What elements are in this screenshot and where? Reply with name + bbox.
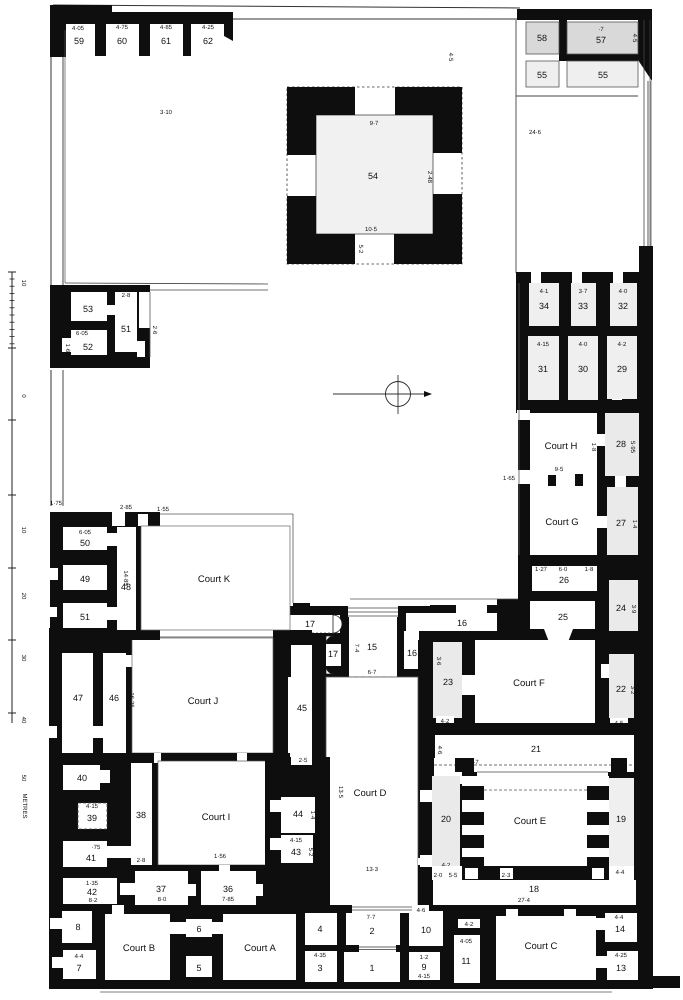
svg-text:5: 5 bbox=[196, 963, 201, 973]
svg-text:4·05: 4·05 bbox=[460, 938, 473, 945]
svg-text:1·65: 1·65 bbox=[503, 475, 516, 482]
svg-text:61: 61 bbox=[161, 36, 171, 46]
svg-text:15: 15 bbox=[367, 642, 377, 652]
svg-text:1·4: 1·4 bbox=[309, 811, 316, 820]
svg-text:1·8: 1·8 bbox=[585, 566, 594, 573]
svg-text:37: 37 bbox=[156, 884, 166, 894]
svg-text:8: 8 bbox=[75, 922, 80, 932]
svg-text:Court H: Court H bbox=[545, 441, 578, 452]
svg-text:29: 29 bbox=[617, 364, 627, 374]
svg-text:9·7: 9·7 bbox=[370, 120, 379, 127]
svg-text:4·35: 4·35 bbox=[314, 952, 327, 959]
svg-text:3·95: 3·95 bbox=[193, 949, 206, 956]
svg-text:4·25: 4·25 bbox=[615, 952, 628, 959]
svg-text:8·0: 8·0 bbox=[158, 896, 167, 903]
svg-text:10: 10 bbox=[20, 280, 27, 287]
svg-text:6: 6 bbox=[196, 924, 201, 934]
svg-text:13: 13 bbox=[616, 963, 626, 973]
svg-text:16: 16 bbox=[407, 648, 417, 658]
svg-text:33: 33 bbox=[578, 301, 588, 311]
svg-text:50: 50 bbox=[20, 775, 27, 782]
svg-text:4·25: 4·25 bbox=[202, 24, 215, 31]
svg-text:2·8: 2·8 bbox=[122, 292, 131, 299]
svg-text:1·55: 1·55 bbox=[157, 506, 170, 513]
svg-text:1·8: 1·8 bbox=[590, 443, 597, 452]
svg-text:Court C: Court C bbox=[525, 941, 558, 952]
svg-text:26: 26 bbox=[559, 575, 569, 585]
svg-text:43: 43 bbox=[291, 847, 301, 857]
svg-text:Court K: Court K bbox=[198, 574, 231, 585]
svg-text:5·2: 5·2 bbox=[307, 848, 314, 857]
svg-text:18: 18 bbox=[529, 884, 539, 894]
svg-text:4·0: 4·0 bbox=[619, 288, 628, 295]
svg-text:4·15: 4·15 bbox=[537, 341, 550, 348]
svg-text:Court B: Court B bbox=[123, 943, 155, 954]
svg-text:2·08: 2·08 bbox=[573, 872, 586, 879]
svg-text:52: 52 bbox=[83, 342, 93, 352]
svg-text:10: 10 bbox=[421, 925, 431, 935]
svg-text:44: 44 bbox=[293, 809, 303, 819]
svg-text:40: 40 bbox=[77, 773, 87, 783]
svg-text:30: 30 bbox=[578, 364, 588, 374]
svg-text:2·8: 2·8 bbox=[137, 857, 146, 864]
svg-text:4·15: 4·15 bbox=[86, 803, 99, 810]
svg-text:7: 7 bbox=[76, 963, 81, 973]
svg-text:Court G: Court G bbox=[545, 517, 578, 528]
svg-text:51: 51 bbox=[80, 612, 90, 622]
svg-text:4·75: 4·75 bbox=[116, 24, 129, 31]
svg-text:Court J: Court J bbox=[188, 696, 219, 707]
svg-text:21: 21 bbox=[531, 744, 541, 754]
svg-text:5·5: 5·5 bbox=[449, 872, 458, 879]
svg-text:54: 54 bbox=[368, 171, 378, 181]
svg-text:4·6: 4·6 bbox=[436, 746, 443, 755]
svg-text:6·05: 6·05 bbox=[79, 529, 92, 536]
svg-text:3·9: 3·9 bbox=[630, 605, 637, 614]
svg-text:1·56: 1·56 bbox=[214, 853, 227, 860]
svg-text:27·4: 27·4 bbox=[518, 897, 531, 904]
svg-text:24: 24 bbox=[616, 603, 626, 613]
svg-text:27: 27 bbox=[616, 518, 626, 528]
svg-text:4·15: 4·15 bbox=[290, 837, 303, 844]
svg-text:7·7: 7·7 bbox=[367, 914, 376, 921]
svg-text:58: 58 bbox=[537, 33, 547, 43]
svg-text:7·35: 7·35 bbox=[172, 938, 179, 951]
svg-text:11: 11 bbox=[461, 956, 470, 966]
svg-text:Court A: Court A bbox=[244, 943, 276, 954]
svg-text:3: 3 bbox=[317, 963, 322, 973]
svg-text:55: 55 bbox=[537, 70, 547, 80]
svg-text:1·35: 1·35 bbox=[86, 880, 99, 887]
svg-text:8·2: 8·2 bbox=[89, 897, 98, 904]
svg-text:4·4: 4·4 bbox=[616, 869, 625, 876]
svg-text:2·0: 2·0 bbox=[434, 872, 443, 879]
svg-text:60: 60 bbox=[117, 36, 127, 46]
svg-text:4·4: 4·4 bbox=[75, 953, 84, 960]
svg-text:1: 1 bbox=[369, 963, 374, 973]
svg-text:2: 2 bbox=[369, 926, 374, 936]
svg-text:34: 34 bbox=[539, 301, 549, 311]
svg-text:3·6: 3·6 bbox=[435, 657, 442, 666]
svg-text:55: 55 bbox=[598, 70, 608, 80]
svg-text:57: 57 bbox=[596, 35, 606, 45]
svg-text:4·15: 4·15 bbox=[418, 973, 431, 980]
svg-text:1·6: 1·6 bbox=[64, 344, 71, 353]
svg-text:Court D: Court D bbox=[354, 788, 387, 799]
svg-text:6·05: 6·05 bbox=[76, 330, 89, 337]
svg-text:23: 23 bbox=[443, 677, 453, 687]
svg-text:49: 49 bbox=[80, 574, 90, 584]
svg-text:4: 4 bbox=[317, 924, 322, 934]
svg-text:47: 47 bbox=[73, 693, 83, 703]
svg-text:5·95: 5·95 bbox=[629, 441, 636, 454]
svg-text:4·1: 4·1 bbox=[540, 288, 549, 295]
svg-text:4·05: 4·05 bbox=[72, 25, 85, 32]
svg-text:·75: ·75 bbox=[92, 844, 101, 851]
svg-text:51: 51 bbox=[121, 324, 131, 334]
svg-text:4·6: 4·6 bbox=[417, 907, 426, 914]
svg-text:14: 14 bbox=[615, 924, 625, 934]
svg-text:6·7: 6·7 bbox=[368, 669, 377, 676]
svg-text:·7: ·7 bbox=[598, 26, 604, 33]
svg-text:22: 22 bbox=[616, 684, 626, 694]
svg-text:4·85: 4·85 bbox=[160, 24, 173, 31]
svg-text:3·7: 3·7 bbox=[579, 288, 588, 295]
svg-text:2·85: 2·85 bbox=[120, 504, 133, 511]
svg-text:16·25: 16·25 bbox=[128, 692, 135, 708]
svg-text:4·2: 4·2 bbox=[618, 341, 627, 348]
svg-text:16: 16 bbox=[457, 618, 467, 628]
svg-text:19: 19 bbox=[616, 814, 626, 824]
svg-text:20: 20 bbox=[441, 814, 451, 824]
svg-text:7·4: 7·4 bbox=[353, 644, 360, 653]
svg-text:13·3: 13·3 bbox=[366, 866, 379, 873]
svg-text:9: 9 bbox=[421, 962, 426, 972]
svg-text:39: 39 bbox=[87, 813, 97, 823]
svg-text:62: 62 bbox=[203, 36, 213, 46]
svg-text:1·27: 1·27 bbox=[535, 566, 548, 573]
svg-text:59: 59 bbox=[74, 36, 84, 46]
svg-text:2·3: 2·3 bbox=[502, 872, 511, 879]
svg-text:41: 41 bbox=[86, 853, 96, 863]
svg-text:10: 10 bbox=[20, 527, 27, 534]
svg-text:20: 20 bbox=[20, 593, 27, 600]
svg-text:4·4: 4·4 bbox=[615, 914, 624, 921]
svg-text:32: 32 bbox=[618, 301, 628, 311]
svg-text:30: 30 bbox=[20, 655, 27, 662]
svg-text:38: 38 bbox=[136, 810, 146, 820]
svg-text:2·6: 2·6 bbox=[151, 326, 158, 335]
svg-text:Court F: Court F bbox=[513, 678, 545, 689]
svg-text:9·5: 9·5 bbox=[555, 466, 564, 473]
svg-text:53: 53 bbox=[83, 304, 93, 314]
svg-text:5·2: 5·2 bbox=[357, 245, 364, 254]
svg-text:25: 25 bbox=[558, 612, 568, 622]
svg-text:4·2: 4·2 bbox=[465, 921, 474, 928]
svg-text:6·0: 6·0 bbox=[559, 566, 568, 573]
svg-text:46: 46 bbox=[109, 693, 119, 703]
svg-text:42: 42 bbox=[87, 887, 97, 897]
svg-text:2·5: 2·5 bbox=[299, 757, 308, 764]
svg-text:Court E: Court E bbox=[514, 816, 546, 827]
svg-text:3·2: 3·2 bbox=[629, 686, 636, 695]
svg-text:4·0: 4·0 bbox=[579, 341, 588, 348]
svg-text:28: 28 bbox=[616, 439, 626, 449]
svg-text:17: 17 bbox=[328, 649, 338, 659]
svg-text:10·5: 10·5 bbox=[365, 226, 378, 233]
svg-text:31: 31 bbox=[538, 364, 548, 374]
svg-text:2·48: 2·48 bbox=[426, 171, 433, 184]
svg-text:45: 45 bbox=[297, 703, 307, 713]
svg-text:3·10: 3·10 bbox=[160, 109, 173, 116]
svg-text:13·5: 13·5 bbox=[337, 786, 344, 799]
svg-text:1·2: 1·2 bbox=[420, 954, 429, 961]
svg-text:1·75: 1·75 bbox=[50, 500, 63, 507]
svg-text:4·5: 4·5 bbox=[631, 34, 638, 43]
svg-text:50: 50 bbox=[80, 538, 90, 548]
svg-text:40: 40 bbox=[20, 717, 27, 724]
svg-text:METRES: METRES bbox=[21, 793, 28, 818]
svg-text:17: 17 bbox=[305, 619, 315, 629]
svg-text:4·5: 4·5 bbox=[447, 53, 454, 62]
svg-text:Court I: Court I bbox=[202, 812, 231, 823]
svg-text:14·85: 14·85 bbox=[122, 570, 129, 586]
svg-text:36: 36 bbox=[223, 884, 233, 894]
svg-text:24·6: 24·6 bbox=[529, 129, 542, 136]
svg-text:1·4: 1·4 bbox=[631, 520, 638, 529]
svg-text:·7: ·7 bbox=[473, 759, 479, 766]
svg-text:7·85: 7·85 bbox=[222, 896, 235, 903]
